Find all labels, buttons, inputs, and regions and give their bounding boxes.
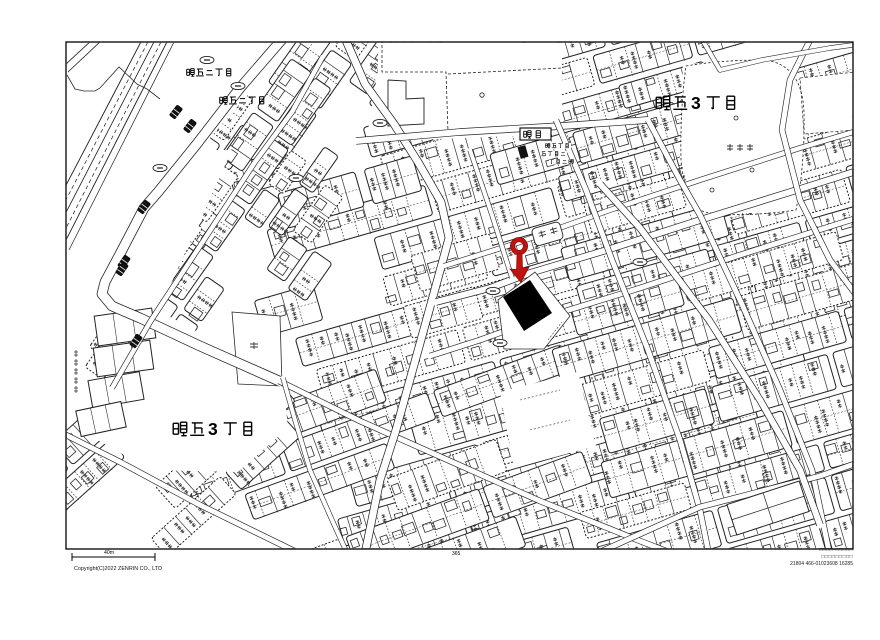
svg-text:21804 466-01023608 16285: 21804 466-01023608 16285 <box>790 561 853 567</box>
svg-text:□□□□□□□□□: □□□□□□□□□ <box>821 554 853 560</box>
svg-text:3: 3 <box>208 419 218 439</box>
svg-text:40m: 40m <box>104 550 114 556</box>
svg-text:□□□□-□□□□□: □□□□-□□□□□ <box>819 547 853 553</box>
svg-text:Copyright(C)2022 ZENRIN CO., L: Copyright(C)2022 ZENRIN CO., LTD <box>74 566 162 572</box>
svg-text:3: 3 <box>691 93 701 113</box>
svg-text:365: 365 <box>452 551 461 557</box>
